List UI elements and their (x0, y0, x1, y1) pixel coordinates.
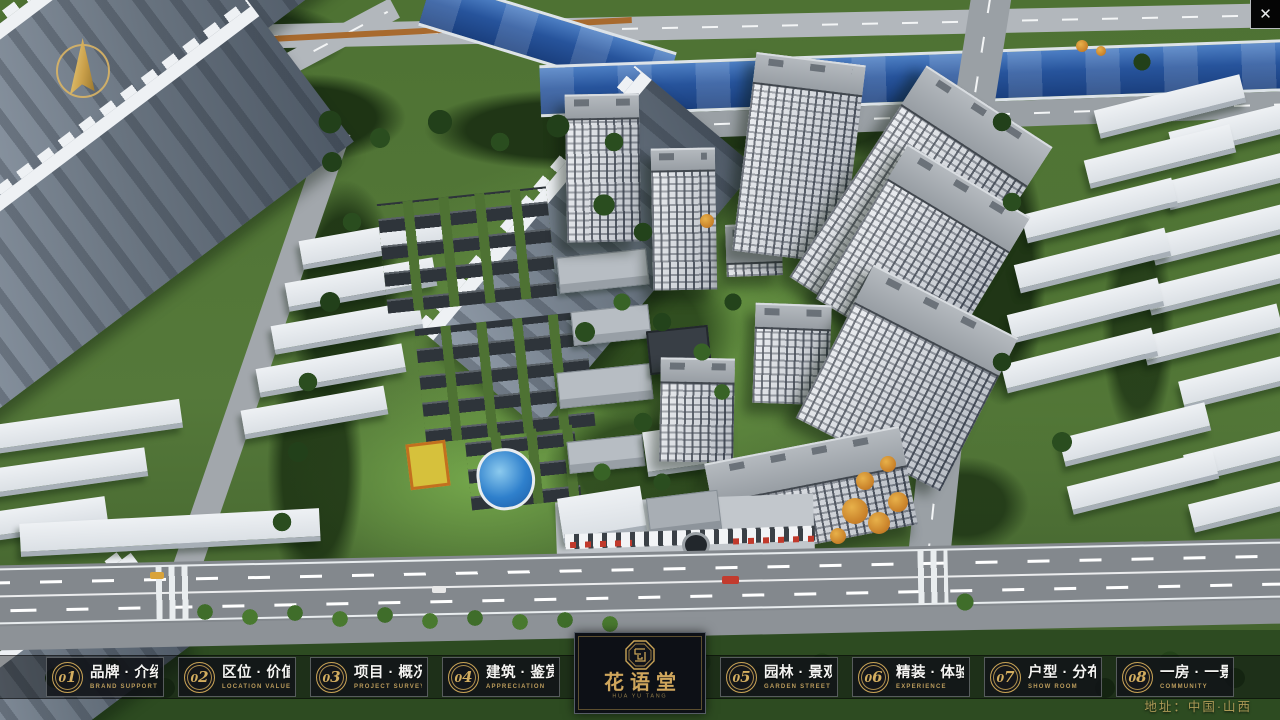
menu-item-label-zh: 户型 · 分布 (1028, 661, 1096, 682)
menu-item-number-badge: 08 (1122, 662, 1153, 693)
menu-item-interior-experience[interactable]: 06 精装 · 体验EXPERIENCE (852, 657, 970, 697)
menu-item-number: 07 (996, 670, 1014, 685)
menu-item-number: 03 (322, 670, 340, 685)
logo-title: 花语堂 (598, 671, 682, 693)
compass-icon (50, 36, 112, 98)
menu-item-number-badge: 02 (184, 662, 215, 693)
seal-icon (625, 640, 655, 670)
menu-item-number-badge: 01 (52, 662, 83, 693)
menu-item-number-badge: 03 (316, 662, 347, 693)
menu-item-label-en: APPRECIATION (486, 683, 527, 690)
menu-item-label-zh: 精装 · 体验 (896, 661, 964, 682)
menu-item-floorplan[interactable]: 07 户型 · 分布SHOW ROOM (984, 657, 1102, 697)
menu-item-number-badge: 06 (858, 662, 889, 693)
menu-item-number: 05 (732, 670, 750, 685)
masterplan-render[interactable] (0, 0, 1280, 720)
menu-item-architecture[interactable]: 04 建筑 · 鉴赏APPRECIATION (442, 657, 560, 697)
close-button[interactable]: ✕ (1250, 0, 1280, 29)
project-logo[interactable]: 花语堂 HUA YU TANG (574, 632, 706, 714)
menu-item-label-en: LOCATION VALUE (222, 683, 263, 690)
menu-item-number: 04 (454, 670, 472, 685)
tree-layer (0, 0, 1280, 720)
menu-item-landscape[interactable]: 05 园林 · 景观GARDEN STREET (720, 657, 838, 697)
menu-item-label-en: BRAND SUPPORT (90, 683, 131, 690)
menu-item-label-en: SHOW ROOM (1028, 683, 1069, 690)
menu-item-number-badge: 07 (990, 662, 1021, 693)
menu-item-number-badge: 05 (726, 662, 757, 693)
menu-item-brand-intro[interactable]: 01 品牌 · 介绍BRAND SUPPORT (46, 657, 164, 697)
menu-item-number: 08 (1128, 670, 1146, 685)
menu-item-room-view[interactable]: 08 一房 · 一景COMMUNITY (1116, 657, 1234, 697)
close-icon: ✕ (1259, 5, 1272, 23)
logo-subtitle: HUA YU TANG (613, 693, 668, 699)
menu-item-project-overview[interactable]: 03 项目 · 概况PROJECT SURVEY (310, 657, 428, 697)
menu-item-label-zh: 区位 · 价值 (222, 661, 290, 682)
presentation-screen: ✕ 地址：中国·山西 01 品牌 · 介绍BRAND SUPPORT 02 区位… (0, 0, 1280, 720)
menu-item-label-en: EXPERIENCE (896, 683, 937, 690)
menu-item-label-en: PROJECT SURVEY (354, 683, 395, 690)
menu-item-number: 06 (864, 670, 882, 685)
menu-item-location-value[interactable]: 02 区位 · 价值LOCATION VALUE (178, 657, 296, 697)
menu-item-label-zh: 一房 · 一景 (1160, 661, 1228, 682)
menu-item-label-en: COMMUNITY (1160, 683, 1201, 690)
menu-item-label-zh: 园林 · 景观 (764, 661, 832, 682)
menu-item-number: 01 (58, 670, 76, 685)
bottom-menu: 01 品牌 · 介绍BRAND SUPPORT 02 区位 · 价值LOCATI… (0, 655, 1280, 699)
menu-item-label-zh: 建筑 · 鉴赏 (486, 661, 554, 682)
menu-item-label-en: GARDEN STREET (764, 683, 805, 690)
menu-item-number: 02 (190, 670, 208, 685)
menu-item-label-zh: 项目 · 概况 (354, 661, 422, 682)
menu-item-label-zh: 品牌 · 介绍 (90, 661, 158, 682)
menu-item-number-badge: 04 (448, 662, 479, 693)
